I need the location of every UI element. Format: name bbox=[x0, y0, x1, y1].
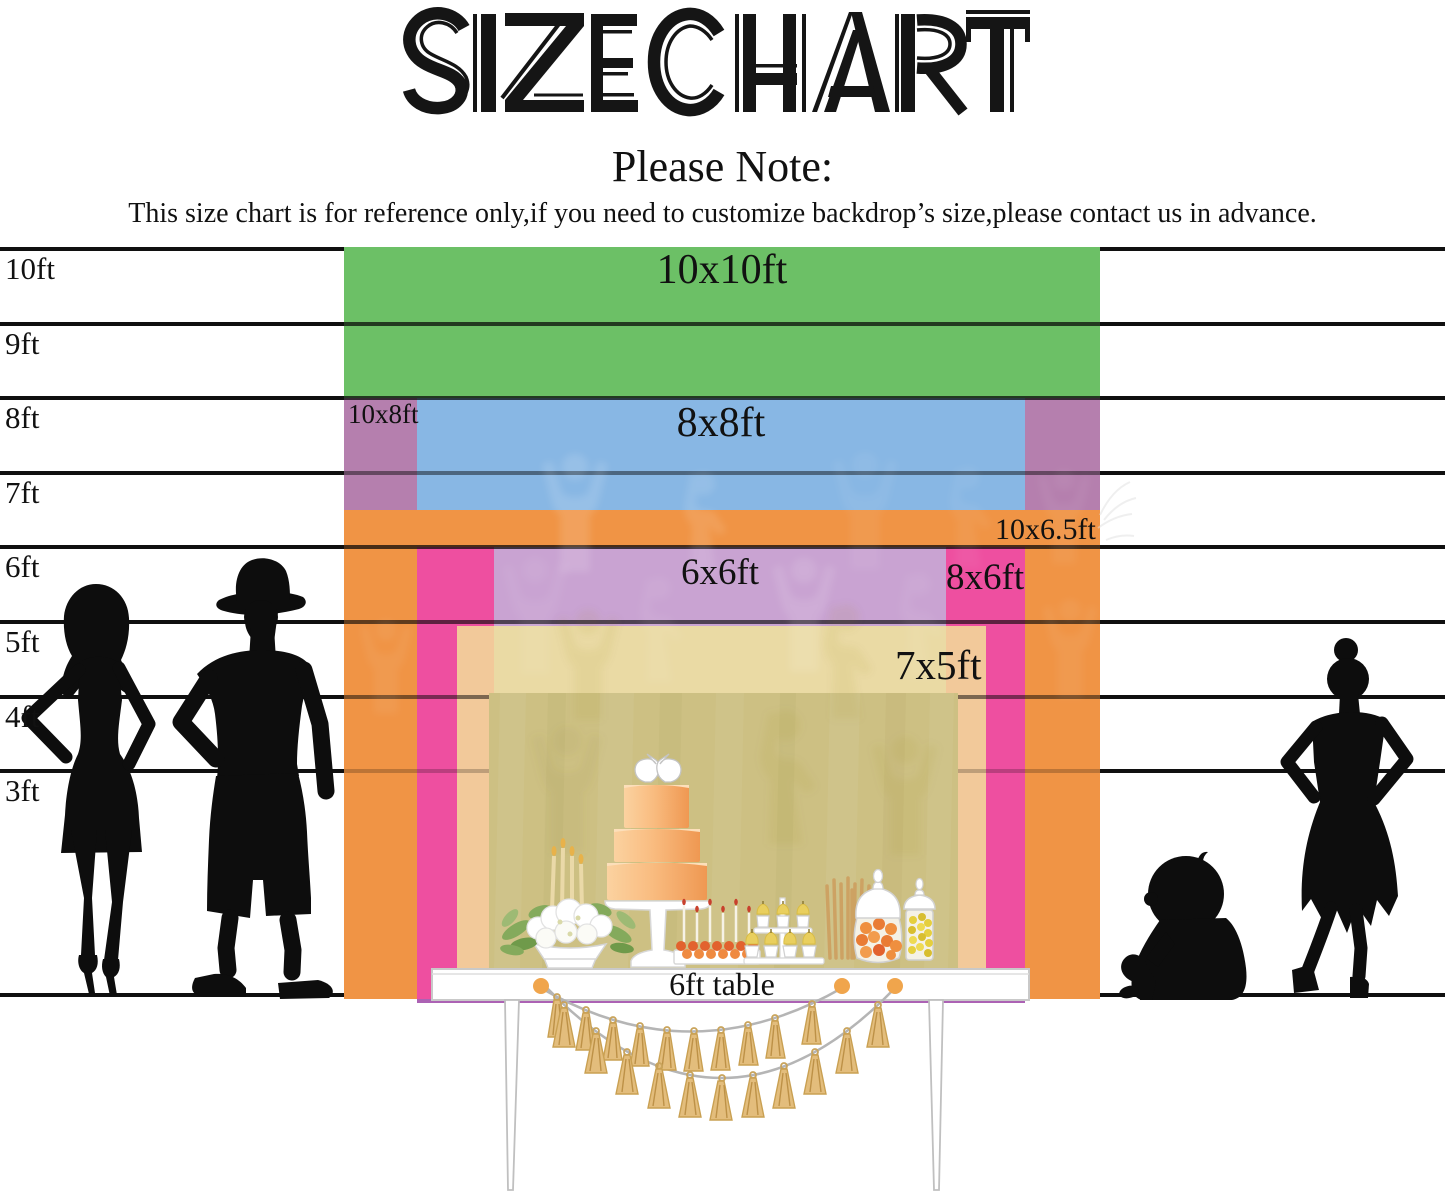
svg-text:6ft table: 6ft table bbox=[669, 966, 775, 1002]
